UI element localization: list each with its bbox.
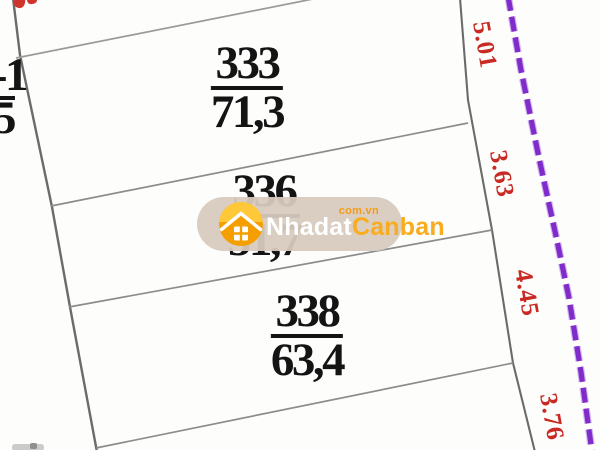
watermark-badge: NhadatCanban com.vn — [197, 197, 402, 251]
plot-number: 333 — [216, 44, 279, 82]
watermark-brand-secondary: Canban — [352, 213, 445, 241]
watermark-brand: NhadatCanban — [266, 213, 445, 242]
plot-label-338: 338 63,4 — [271, 292, 343, 380]
neighbor-plot-area-fragment: 5 — [0, 98, 14, 138]
planning-boundary-dashed-line — [508, 0, 592, 450]
plot-area: 63,4 — [271, 340, 343, 380]
neighbor-plot-number-fragment: -1 — [0, 56, 26, 94]
cadastral-map: 333 71,3 336 51,7 338 63,4 -1 5 5.01 3.6… — [0, 0, 600, 450]
plot-label-333: 333 71,3 — [211, 44, 283, 132]
house-icon — [219, 202, 263, 246]
watermark-domain: com.vn — [339, 205, 379, 217]
cropped-text-smudge — [30, 443, 37, 449]
plot-area: 71,3 — [211, 92, 283, 132]
plot-number: 338 — [276, 292, 339, 330]
watermark-brand-primary: Nhadat — [266, 213, 352, 241]
cropped-text-smudge — [12, 444, 44, 450]
